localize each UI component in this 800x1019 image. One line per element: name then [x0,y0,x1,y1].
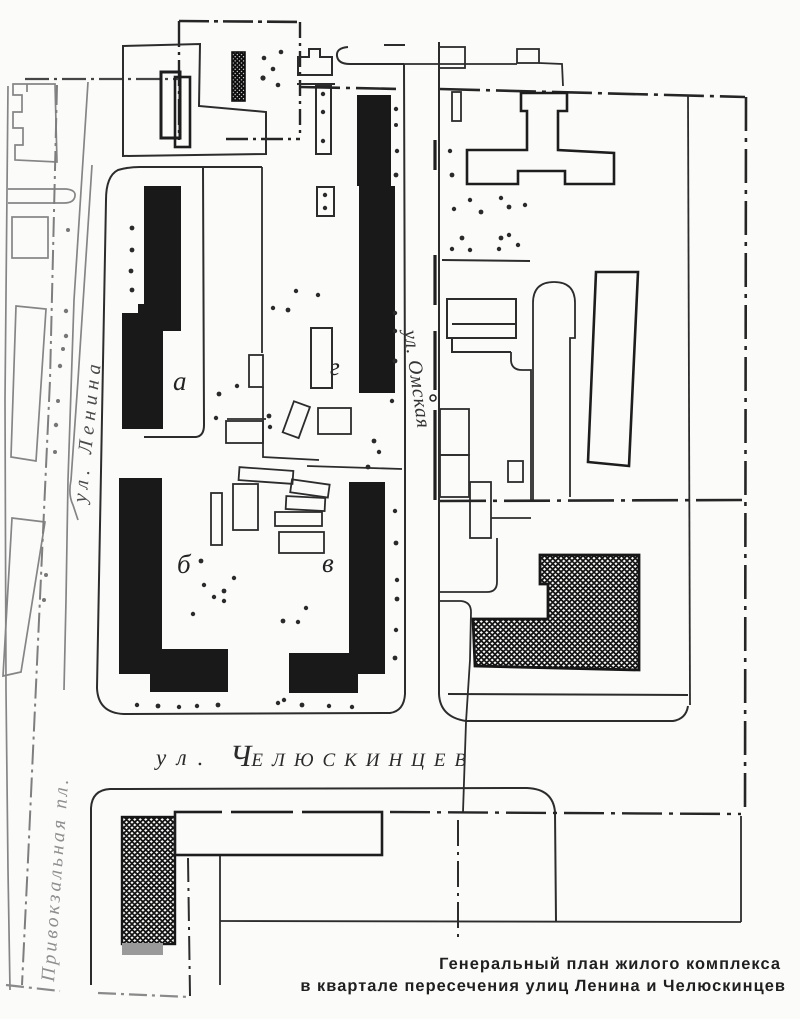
svg-text:ул.: ул. [154,745,214,770]
svg-text:б: б [177,549,192,579]
svg-text:в: в [322,548,334,578]
svg-text:в квартале пересечения улиц Ле: в квартале пересечения улиц Ленина и Чел… [300,977,786,995]
svg-text:а: а [173,366,187,396]
svg-text:Генеральный план жилого компле: Генеральный план жилого комплекса [439,955,781,973]
